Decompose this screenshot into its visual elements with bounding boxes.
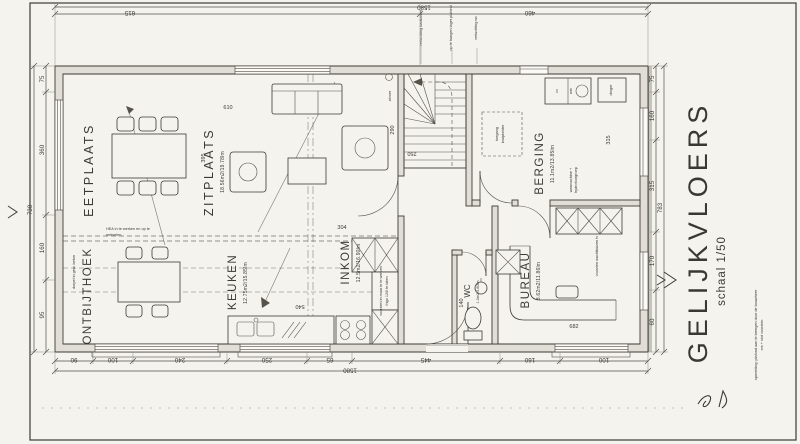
room-label-bureau: BUREAU (520, 252, 532, 309)
hydro-note-2: hydrofoorgroep (574, 167, 578, 193)
wall-hall-bureau (492, 206, 498, 344)
bureau-door-arc (518, 206, 550, 238)
room-area-bureau: 8.62m2/11.86lm (536, 262, 542, 300)
dim-keuken: 540 (295, 303, 304, 309)
hea-note-1: HEA in te werken en op te (106, 227, 150, 231)
wall-berging-bureau (550, 200, 640, 206)
wc-door-arc (462, 252, 486, 276)
room-label-berging: BERGING (534, 131, 546, 195)
room-area-zitplaats: 18.56m2/19.78lm (220, 151, 226, 193)
dim-bureau: 682 (569, 324, 578, 330)
dim-right-2: 160 (649, 110, 656, 121)
room-area-wc: 1.3m2/4.60lm (476, 280, 480, 303)
afvoer-label: afvoer (388, 90, 392, 101)
dim-right-4: 170 (649, 255, 656, 266)
berging-appliances: cv wm droger (545, 78, 626, 104)
dim-right-5: 60 (649, 318, 656, 325)
hea-note-2: metselen (106, 233, 121, 237)
dim-zit-h: 395 (201, 153, 207, 162)
dim-wc: 140 (459, 298, 465, 307)
room-area-inkom: 12.5m2/16.90lm (356, 244, 362, 283)
drain-icon (386, 74, 393, 81)
dim-right-total: 783 (657, 202, 664, 213)
crawlspace-label-2: kruipkelder (501, 124, 505, 143)
sheet-scale: schaal 1/50 (716, 236, 728, 306)
side-table (288, 158, 326, 184)
armchair (230, 152, 266, 192)
wm-label: wm (569, 88, 573, 94)
room-area-keuken: 12.75m2/15.85lm (243, 262, 249, 304)
wall-wc-top-a (452, 250, 462, 255)
dim-top-total: 1580 (417, 4, 431, 11)
sheet-note-2: rvs + slot voorzien (760, 320, 764, 351)
dim-sofa: 304 (337, 225, 346, 231)
droger-label: droger (609, 84, 613, 96)
dim-top-1: 615 (124, 9, 135, 16)
wachtbuis-note: voorzien wachtbuizen tv (595, 236, 599, 277)
dim-right-1: 75 (649, 75, 656, 82)
dimensions-top: 615 460 1580 (52, 4, 651, 67)
window-sill (238, 352, 332, 357)
sofa (272, 84, 342, 184)
wall-berging-stub (472, 200, 480, 206)
window-sill (552, 352, 630, 357)
section-marker (8, 206, 17, 218)
dim-bottom-7: 160 (524, 356, 535, 363)
cv-label: cv (555, 89, 559, 93)
window (640, 108, 648, 176)
beam-arrowhead (261, 297, 270, 308)
wall-living-hall-lower (398, 216, 404, 344)
dim-berging: 315 (606, 135, 612, 144)
signature (698, 391, 727, 408)
frigo-note-1: voorzien in muur in te werken (379, 266, 383, 316)
dim-bottom-4: 250 (261, 356, 272, 363)
scanned-floorplan-sheet: toegang kruipkelder cv wm droger wasmach… (0, 0, 800, 444)
wall-wc-left (452, 250, 457, 344)
window (520, 66, 548, 74)
dim-bottom-1: 90 (70, 356, 77, 363)
window (240, 344, 330, 352)
room-label-inkom: INKOM (340, 239, 352, 284)
room-label-wc: WC (463, 284, 472, 298)
room-label-keuken: KEUKEN (227, 254, 239, 310)
wall-stair-berging (466, 74, 472, 206)
stair-arrow (413, 78, 422, 86)
dim-top-2: 460 (524, 9, 535, 16)
armchair (342, 126, 388, 170)
window (640, 252, 648, 310)
dim-right-3: 315 (649, 180, 656, 191)
dim-bottom-2: 100 (107, 356, 118, 363)
window (95, 344, 218, 352)
dim-left-4: 95 (39, 311, 46, 318)
dim-zit-w: 610 (223, 105, 232, 111)
dorpel-note: dorpel in gew. beton (72, 255, 76, 289)
dining-set (112, 117, 186, 195)
room-area-berging: 11.1m2/13.85lm (550, 145, 556, 183)
room-label-ontbijthoek: ONTBIJTHOEK (82, 247, 94, 344)
hall-cabinet (496, 250, 520, 274)
toilet (464, 307, 482, 340)
desk-chair (556, 286, 578, 298)
room-label-zitplaats: ZITPLAATS (202, 128, 216, 216)
dim-left-3: 160 (39, 242, 46, 253)
window (555, 344, 628, 352)
floorplan-drawing: toegang kruipkelder cv wm droger wasmach… (0, 0, 800, 444)
sheet-title: GELIJKVLOERS (683, 101, 713, 364)
frigo-note-2: frigo 120l te laten (385, 276, 389, 305)
room-label-eetplaats: EETPLAATS (82, 123, 96, 217)
crawlspace-hatch: toegang kruipkelder (482, 112, 522, 156)
window (235, 66, 330, 74)
hydro-note-1: wasmachine + (569, 167, 573, 192)
wall-living-hall-upper (398, 74, 404, 176)
stair-walkline (422, 82, 452, 166)
wardrobe (556, 208, 622, 234)
dim-stair: 250 (407, 150, 416, 156)
cooktop (336, 316, 370, 344)
beam-arrowhead (126, 106, 134, 114)
dim-hal: 290 (390, 125, 396, 134)
dim-left-2: 360 (39, 144, 46, 155)
vent-note-3: verluchting wc (474, 16, 478, 40)
dim-left-1: 75 (39, 75, 46, 82)
dim-bottom-total: 1580 (343, 367, 357, 374)
sheet-note-1: opmerking: plafond aan te brengen door d… (754, 289, 758, 380)
berging-door-arc (480, 171, 512, 203)
wall-berging-mid (512, 200, 518, 206)
section-marker (657, 272, 676, 288)
dim-left-total: 730 (27, 204, 34, 215)
wall-wc-top-b (486, 250, 492, 255)
living-door-arc (358, 176, 398, 216)
kitchen-counter (228, 316, 370, 344)
dimensions-bottom: 90 100 240 250 65 445 160 100 1580 (52, 352, 651, 374)
dim-bottom-8: 100 (598, 356, 609, 363)
dimensions-left: 75 360 160 95 730 (27, 63, 55, 355)
dim-bottom-3: 240 (174, 356, 185, 363)
crawlspace-label-1: toegang (495, 127, 499, 141)
dim-bottom-5: 65 (326, 356, 333, 363)
vent-note-2: op te hangen lager plafond (449, 5, 453, 50)
window (55, 100, 63, 210)
dim-bottom-6: 445 (420, 356, 431, 363)
breakfast-set (118, 247, 180, 317)
